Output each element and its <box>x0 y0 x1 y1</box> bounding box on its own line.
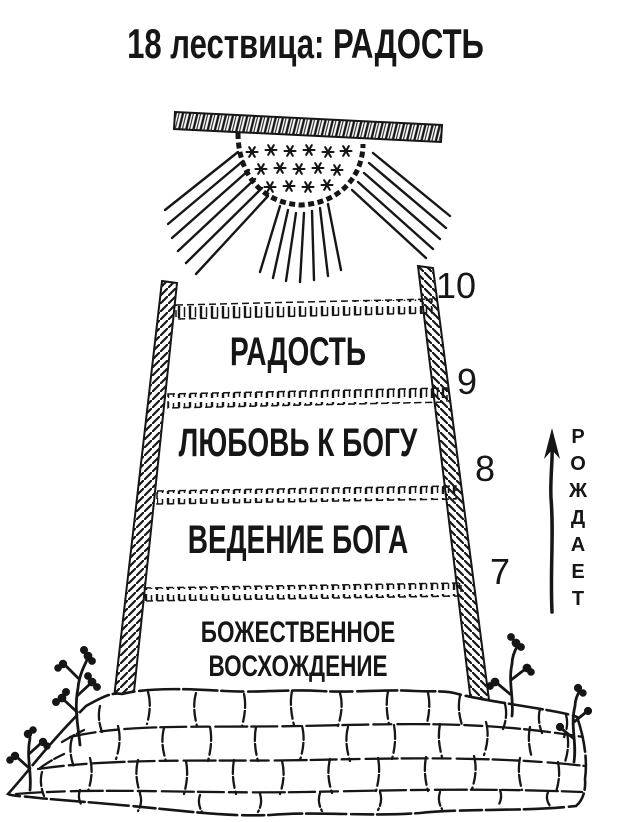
ladder-level-label-joy: РАДОСТЬ <box>176 330 421 375</box>
rung-number-7: 7 <box>490 551 510 593</box>
ladder-base-label-line1: БОЖЕСТВЕННОЕ <box>167 616 430 650</box>
stone-foundation <box>8 689 586 815</box>
ladder-level-label-knowledge-of-god: ВЕДЕНИЕ БОГА <box>176 518 421 563</box>
page-title: 18 лествица: РАДОСТЬ <box>75 20 536 68</box>
rung-number-9: 9 <box>457 361 477 403</box>
ladder-level-label-love-of-god: ЛЮБОВЬ К БОГУ <box>176 421 421 466</box>
ladder-base-label-line2: ВОСХОЖДЕНИЕ <box>167 650 430 684</box>
rung-number-8: 8 <box>475 448 495 490</box>
ladder-diagram-page: 18 лествица: РАДОСТЬ РАДОСТЬ ЛЮБОВЬ К БО… <box>0 0 623 822</box>
ladder-rung-10 <box>176 299 432 319</box>
ladder-rung-8 <box>157 486 456 504</box>
arrow-vertical-label: РОЖДАЕТ <box>566 424 590 613</box>
rung-number-10: 10 <box>436 265 476 307</box>
ladder-illustration <box>0 0 623 822</box>
foundation-outline <box>8 689 586 815</box>
ladder-rung-7 <box>144 583 461 601</box>
up-arrow-icon <box>544 428 560 612</box>
ladder-base-label: БОЖЕСТВЕННОЕ ВОСХОЖДЕНИЕ <box>167 616 430 683</box>
sun-stars <box>247 145 352 192</box>
sun-rays <box>165 152 450 282</box>
ladder-rung-9 <box>168 388 447 408</box>
sun-icon <box>165 112 450 282</box>
